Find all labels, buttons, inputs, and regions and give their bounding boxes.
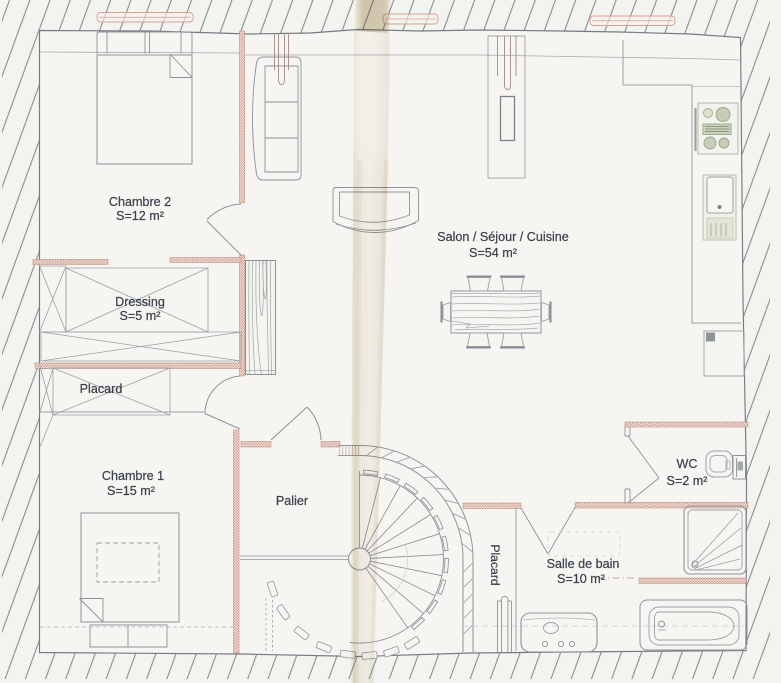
- svg-text:Placard: Placard: [80, 382, 123, 396]
- svg-text:Chambre 1: Chambre 1: [102, 469, 164, 483]
- svg-text:Salle de bain: Salle de bain: [547, 557, 620, 571]
- svg-text:S=5 m²: S=5 m²: [120, 309, 161, 323]
- svg-text:Placard: Placard: [488, 544, 502, 585]
- svg-text:Chambre 2: Chambre 2: [109, 195, 171, 209]
- svg-text:Salon / Séjour / Cuisine: Salon / Séjour / Cuisine: [437, 230, 569, 244]
- svg-text:Palier: Palier: [276, 494, 308, 508]
- svg-text:S=12 m²: S=12 m²: [116, 209, 164, 223]
- svg-text:S=15 m²: S=15 m²: [107, 484, 155, 498]
- svg-text:WC: WC: [677, 457, 698, 471]
- svg-text:S=10 m²: S=10 m²: [557, 572, 605, 586]
- svg-text:S=54 m²: S=54 m²: [469, 246, 517, 260]
- svg-text:Dressing: Dressing: [115, 295, 165, 309]
- svg-text:S=2 m²: S=2 m²: [667, 474, 708, 488]
